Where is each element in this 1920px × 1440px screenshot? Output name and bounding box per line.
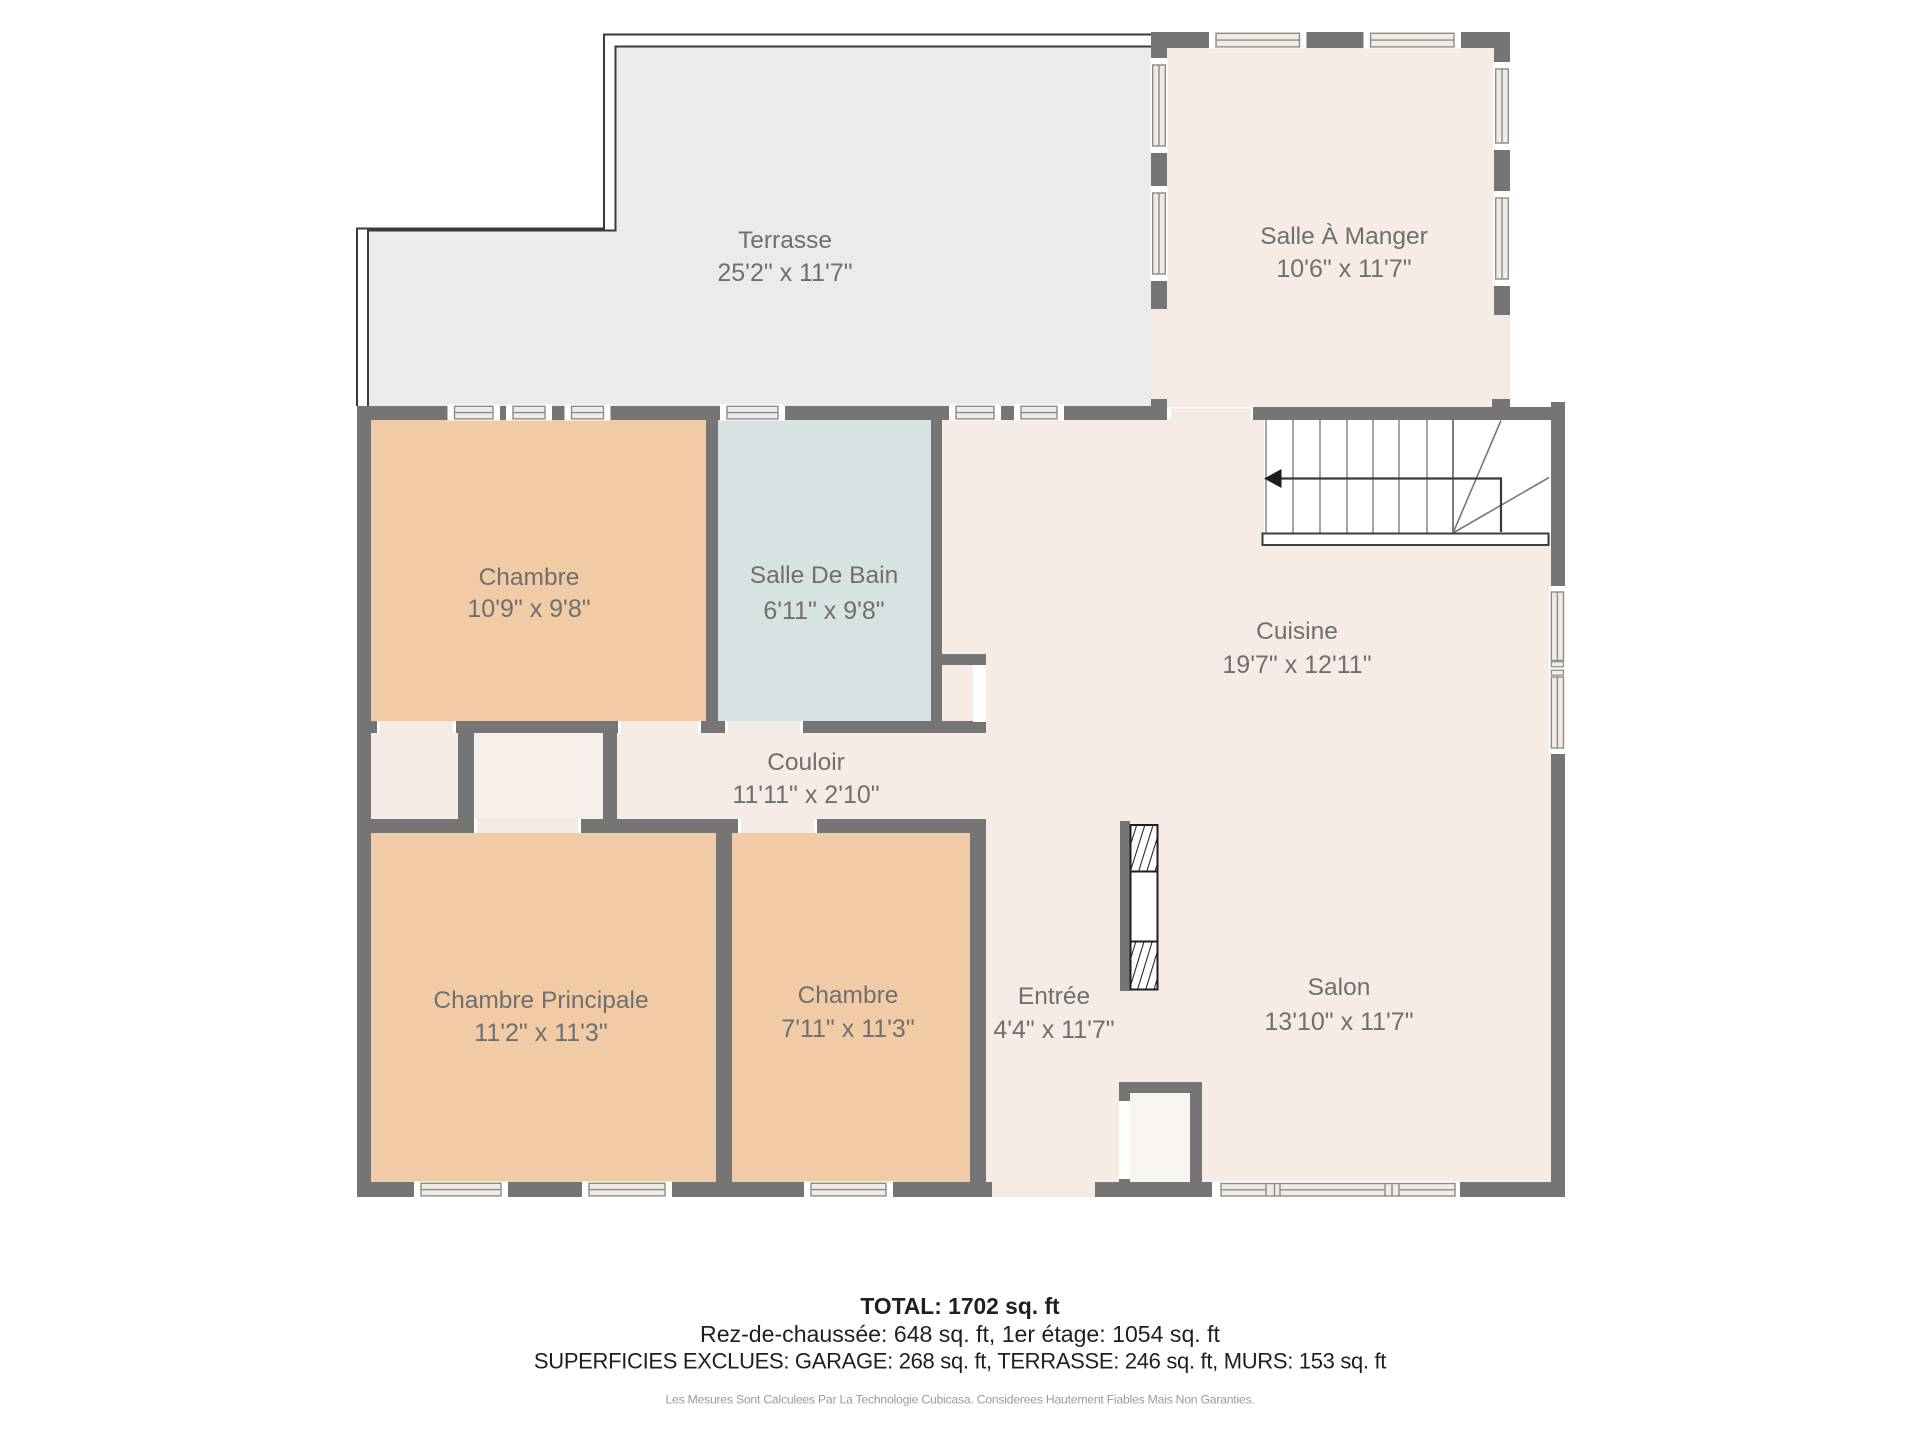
svg-text:Salle De Bain: Salle De Bain: [750, 562, 898, 589]
svg-text:Chambre: Chambre: [798, 982, 899, 1009]
svg-text:Couloir: Couloir: [767, 749, 845, 776]
svg-text:TOTAL: 1702 sq. ft: TOTAL: 1702 sq. ft: [860, 1293, 1060, 1319]
svg-text:Salon: Salon: [1308, 974, 1371, 1001]
svg-text:Chambre Principale: Chambre Principale: [433, 987, 648, 1014]
svg-text:25'2" x 11'7": 25'2" x 11'7": [717, 259, 852, 287]
svg-text:10'9" x 9'8": 10'9" x 9'8": [467, 595, 590, 623]
svg-text:Cuisine: Cuisine: [1256, 618, 1338, 645]
svg-text:Terrasse: Terrasse: [738, 227, 832, 254]
svg-text:6'11" x 9'8": 6'11" x 9'8": [763, 597, 884, 625]
svg-text:19'7" x 12'11": 19'7" x 12'11": [1222, 651, 1371, 679]
svg-text:Les Mesures Sont Calculees Par: Les Mesures Sont Calculees Par La Techno…: [665, 1393, 1254, 1407]
svg-text:11'11" x 2'10": 11'11" x 2'10": [732, 781, 879, 809]
svg-text:SUPERFICIES EXCLUES: GARAGE: 2: SUPERFICIES EXCLUES: GARAGE: 268 sq. ft,…: [534, 1349, 1386, 1374]
svg-text:4'4" x 11'7": 4'4" x 11'7": [993, 1016, 1114, 1044]
svg-text:7'11" x 11'3": 7'11" x 11'3": [781, 1015, 914, 1043]
svg-text:Salle À Manger: Salle À Manger: [1260, 223, 1428, 250]
svg-text:Chambre: Chambre: [479, 564, 580, 591]
svg-text:11'2" x 11'3": 11'2" x 11'3": [474, 1019, 607, 1047]
svg-text:Rez-de-chaussée: 648 sq. ft, 1: Rez-de-chaussée: 648 sq. ft, 1er étage: …: [700, 1321, 1221, 1347]
svg-text:13'10" x 11'7": 13'10" x 11'7": [1264, 1008, 1413, 1036]
svg-text:10'6" x 11'7": 10'6" x 11'7": [1276, 255, 1411, 283]
svg-text:Entrée: Entrée: [1018, 983, 1090, 1010]
